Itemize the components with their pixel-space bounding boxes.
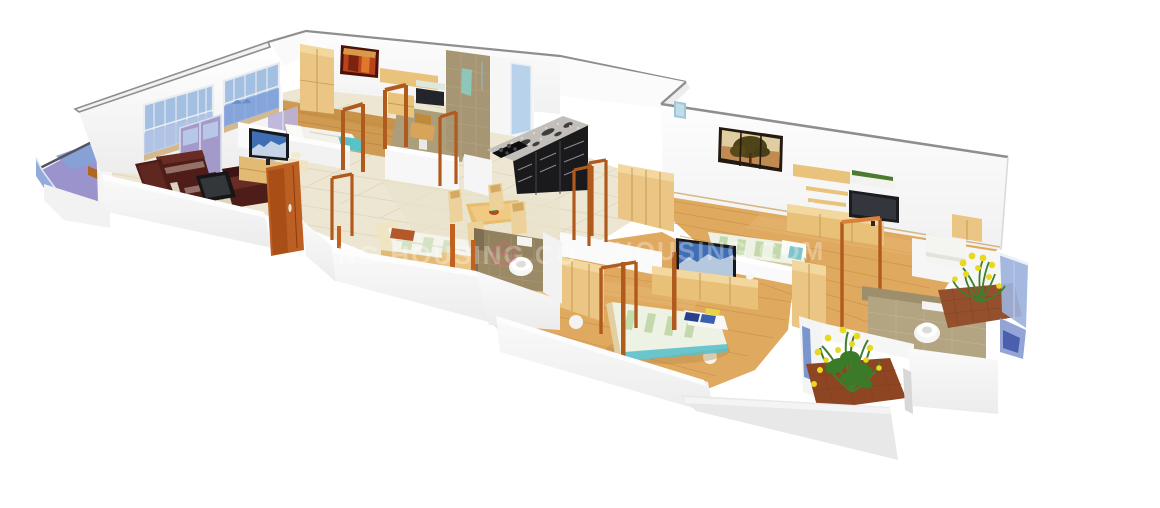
svg-text:NG HOUSING.CO: NG HOUSING.CO — [338, 240, 578, 270]
svg-text:HOUSING.COM: HOUSING.COM — [614, 236, 825, 266]
